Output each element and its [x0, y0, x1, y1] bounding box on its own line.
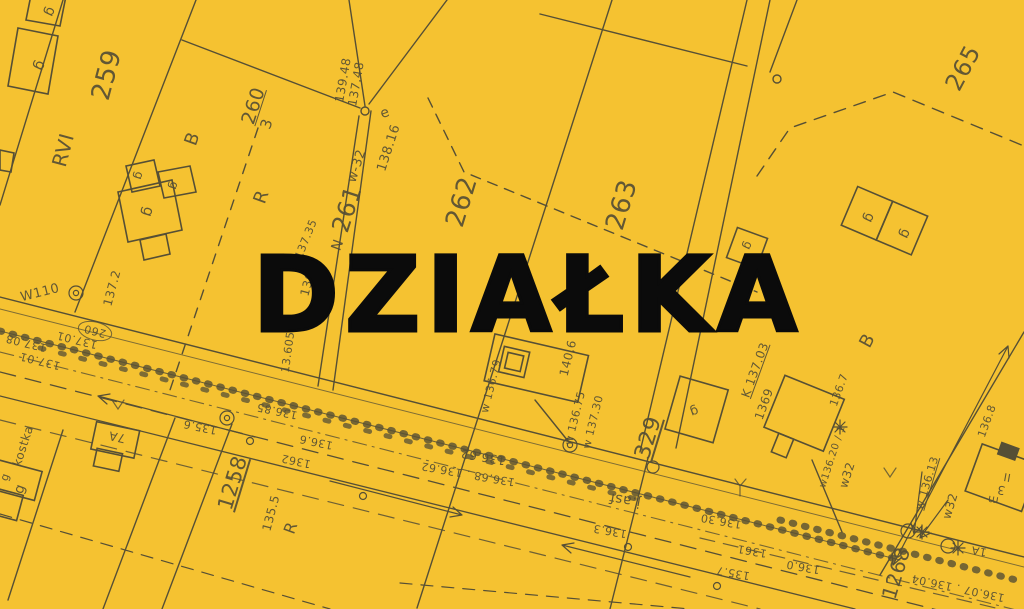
map-label: 136.30	[700, 512, 743, 530]
map-label: g	[0, 472, 11, 483]
map-label: 136.62	[460, 447, 506, 467]
map-label: 136.07 . 136.04	[910, 573, 1005, 604]
map-canvas: 259RVI2603BR261w-32138.16139.48137.48e26…	[0, 0, 1024, 609]
map-label: 1369	[753, 387, 775, 422]
map-label: 136.7	[828, 372, 850, 408]
map-label: 1268	[879, 545, 914, 601]
map-label: 135.5	[260, 494, 281, 533]
map-label: B	[857, 331, 879, 351]
map-label: 3	[996, 483, 1006, 496]
map-label: 262	[442, 174, 482, 231]
map-label: g	[139, 205, 156, 219]
map-label: 1A	[970, 544, 987, 558]
map-label: 136.8	[976, 403, 998, 439]
map-label: g	[861, 211, 878, 225]
map-label: 138.16	[375, 123, 402, 173]
map-label: W110	[19, 282, 61, 304]
map-label: 135.7	[715, 565, 750, 582]
map-label: 7A	[108, 429, 127, 444]
map-label: g	[132, 170, 146, 181]
map-label: 136.0	[785, 559, 820, 576]
map-label: 137.01	[19, 351, 62, 372]
map-label: II	[1002, 471, 1011, 483]
map-label: B	[182, 130, 203, 148]
map-label: RVI	[49, 131, 77, 169]
map-label: 329	[632, 414, 666, 462]
map-label: g	[167, 180, 181, 191]
map-label: g	[897, 227, 914, 241]
map-label: R	[281, 520, 300, 536]
map-label: w32	[940, 492, 959, 521]
map-label: 137.2	[101, 269, 122, 308]
map-label: 263	[602, 177, 642, 234]
map-label: w 136.13	[914, 455, 941, 511]
map-label: 261	[328, 183, 365, 235]
map-label: 1258	[215, 453, 251, 512]
map-label: e	[378, 105, 391, 121]
map-label: w 136.79	[479, 358, 503, 414]
map-label: R	[251, 188, 272, 206]
map-label: 265	[941, 41, 984, 94]
map-label: 1361	[736, 543, 767, 559]
map-label: kostka	[11, 424, 35, 468]
map-label: w-32	[346, 148, 369, 184]
map-label: 136.85	[256, 401, 299, 420]
map-label: w32	[837, 460, 857, 489]
map-label: g	[31, 58, 49, 73]
map-label: 136.6	[298, 433, 334, 451]
page-title: DZIAŁKA	[253, 234, 804, 356]
map-label: j.asf	[608, 490, 642, 509]
map-label: 259	[88, 47, 126, 103]
map-label: 135.6	[182, 418, 218, 436]
map-label: g	[12, 482, 28, 496]
map-label: 136.3	[592, 523, 627, 540]
map-label: 3	[258, 117, 275, 131]
map-label: g	[688, 403, 701, 418]
map-label: 1362	[280, 453, 312, 470]
map-label: g	[42, 5, 59, 19]
